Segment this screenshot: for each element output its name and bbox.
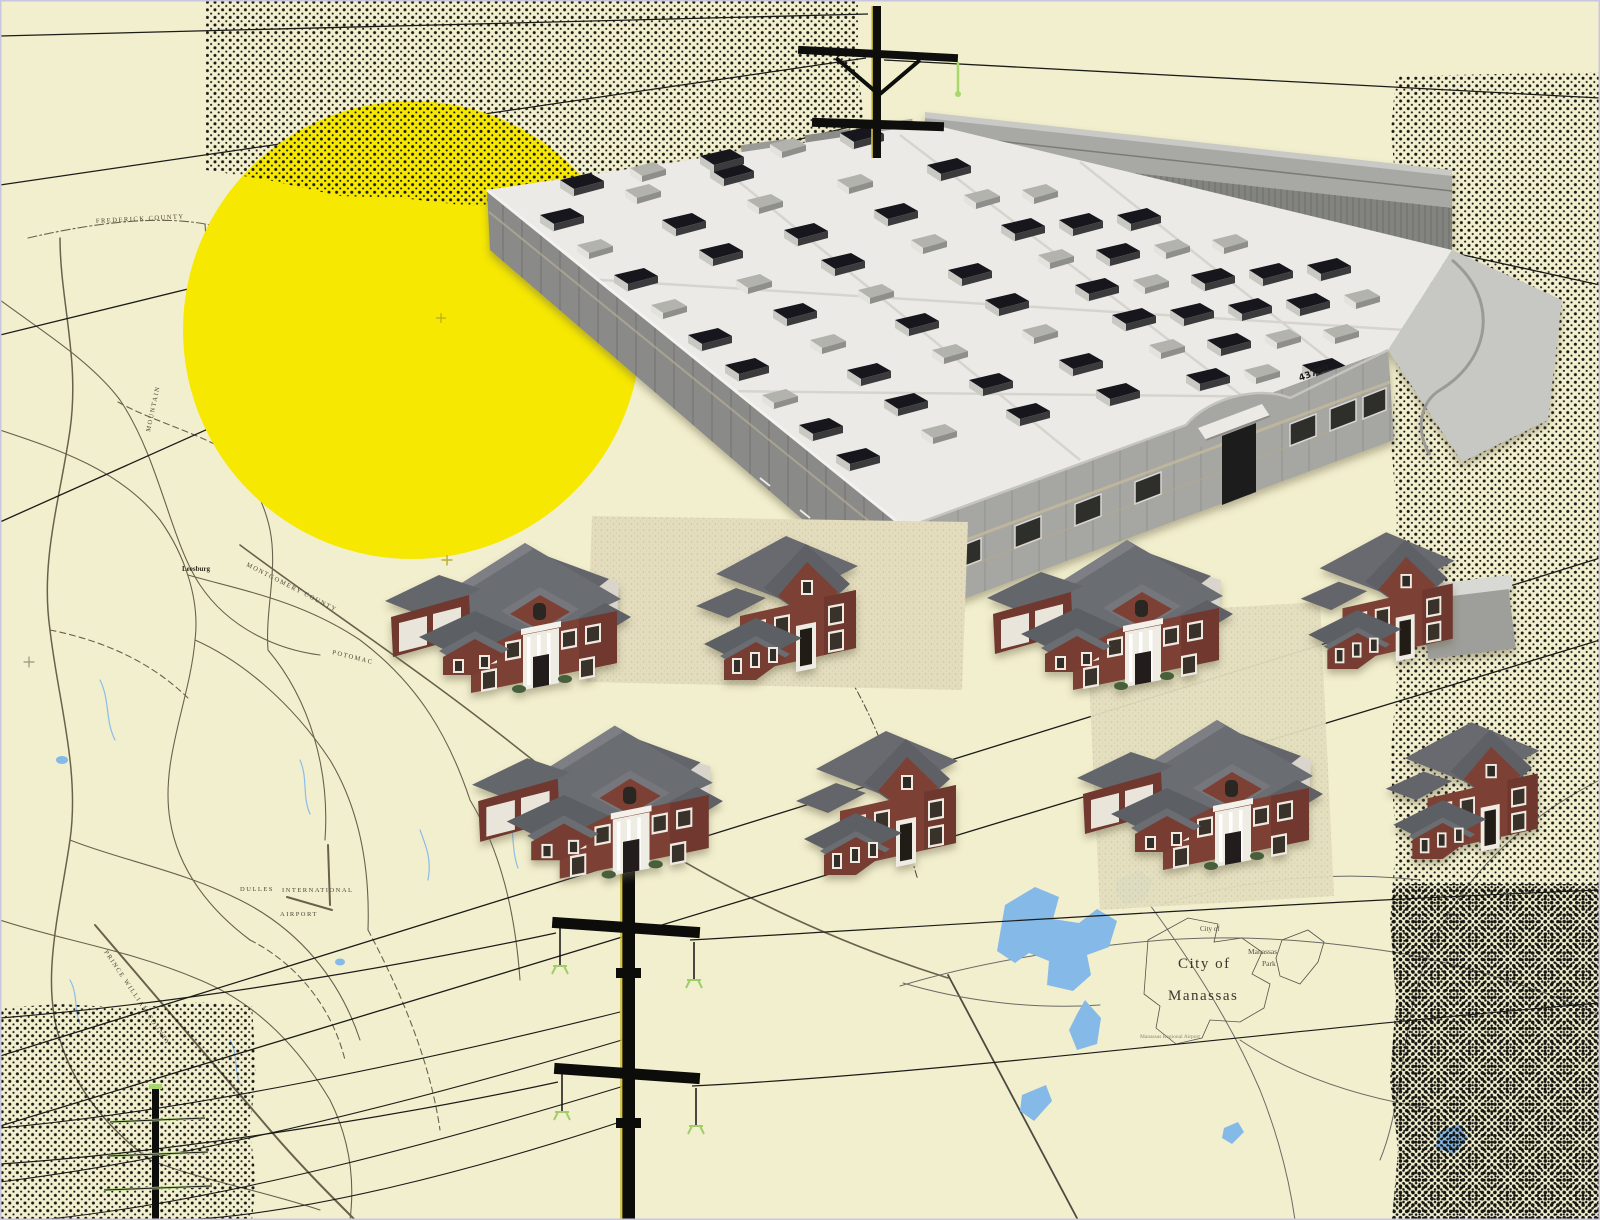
map-label-manassas-park-2: Park bbox=[1262, 959, 1276, 968]
map-label-manassas: Manassas bbox=[1168, 988, 1238, 1004]
map-label-city-of: City of bbox=[1178, 956, 1231, 972]
collage-illustration: FREDERICK COUNTY MOUNTAIN Leesburg MONTG… bbox=[0, 0, 1600, 1220]
map-label-international: INTERNATIONAL bbox=[282, 887, 354, 894]
halftone-bottom-left bbox=[0, 1002, 256, 1220]
map-label-regional-airport: Manassas Regional Airport bbox=[1140, 1034, 1200, 1040]
map-label-leesburg: Leesburg bbox=[182, 565, 211, 573]
map-label-city-of-small: City of bbox=[1200, 925, 1220, 933]
map-label-airport: AIRPORT bbox=[280, 911, 318, 918]
halftone-right-dense bbox=[1390, 884, 1600, 1220]
map-label-manassas-park-1: Manassas bbox=[1248, 947, 1277, 956]
map-label-dulles: DULLES bbox=[240, 886, 274, 893]
